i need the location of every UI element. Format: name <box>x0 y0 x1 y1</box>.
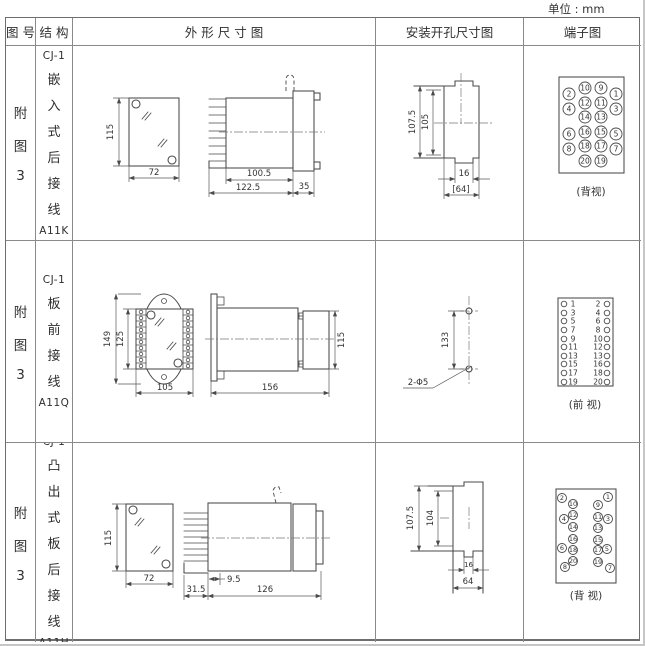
row3-install-drawing: 107.5 104 16 64 <box>376 443 524 642</box>
unit-label: 单位 : mm <box>548 1 638 17</box>
svg-text:2: 2 <box>560 494 564 502</box>
stacked-char: 3 <box>16 367 25 383</box>
svg-text:20: 20 <box>569 557 577 565</box>
svg-text:11: 11 <box>594 513 602 521</box>
view-label: (背视) <box>576 185 605 198</box>
row3-structure: CJ-1凸出式板后接线A11H <box>36 443 73 642</box>
svg-text:5: 5 <box>605 545 609 553</box>
terminals-back-view: 2 4 6 8 10 12 14 16 18 20 9 11 13 15 17 … <box>558 493 615 573</box>
stacked-char: 附 <box>14 301 28 321</box>
svg-text:15: 15 <box>594 536 602 544</box>
svg-text:13: 13 <box>596 113 606 122</box>
dim-9-5: 9.5 <box>227 575 241 585</box>
svg-text:7: 7 <box>608 564 612 572</box>
stacked-char: A11H <box>39 637 69 642</box>
row3-front-dim-lines <box>112 504 173 588</box>
svg-text:10: 10 <box>580 84 590 93</box>
svg-text:14: 14 <box>580 113 590 122</box>
stacked-char: 接 <box>47 585 60 604</box>
dim-126: 126 <box>257 585 273 595</box>
stacked-char: CJ-1 <box>43 443 66 448</box>
header-structure: 结 构 <box>36 18 73 46</box>
svg-text:16: 16 <box>593 360 603 369</box>
stacked-char: 出 <box>47 481 60 500</box>
stacked-char: 线 <box>47 199 60 218</box>
row2-terminal-diagram: 12 34 56 78 910 1112 1313 1516 1718 1920… <box>524 241 641 443</box>
svg-text:12: 12 <box>593 343 603 352</box>
svg-text:19: 19 <box>594 558 602 566</box>
row3-fig-no: 附图3 <box>6 443 36 642</box>
dim-16: 16 <box>459 169 470 179</box>
svg-text:2: 2 <box>567 90 572 99</box>
view-label: (背 视) <box>570 589 603 602</box>
dim-107-5: 107.5 <box>406 506 416 530</box>
dim-104: 104 <box>426 510 436 526</box>
row2-install-drawing: 133 2-Φ5 <box>376 241 524 443</box>
svg-text:19: 19 <box>568 378 578 387</box>
header-fig-no: 图 号 <box>6 18 36 46</box>
stacked-char: 线 <box>47 371 60 390</box>
stacked-char: 后 <box>47 559 60 578</box>
install-dim-lines <box>414 486 489 588</box>
dim-149: 149 <box>103 331 113 347</box>
stacked-char: 接 <box>47 173 60 192</box>
dim-72: 72 <box>144 574 155 584</box>
svg-text:5: 5 <box>614 130 619 139</box>
stacked-char: 式 <box>47 121 60 140</box>
svg-text:9: 9 <box>599 84 604 93</box>
stacked-char: A11Q <box>39 397 70 409</box>
dim-125: 125 <box>116 331 126 347</box>
row1-fig-no: 附图3 <box>6 46 36 241</box>
dim-107-5: 107.5 <box>408 110 418 134</box>
row1-terminal-diagram: 2 4 6 8 10 12 14 16 18 20 9 11 13 15 17 … <box>524 46 641 241</box>
svg-text:10: 10 <box>569 500 577 508</box>
svg-text:7: 7 <box>614 145 619 154</box>
svg-text:9: 9 <box>596 501 600 509</box>
svg-text:3: 3 <box>606 515 610 523</box>
svg-text:5: 5 <box>571 317 576 326</box>
row2-structure: CJ-1板前接线A11Q <box>36 241 73 443</box>
svg-text:2: 2 <box>596 300 601 309</box>
svg-text:1: 1 <box>614 90 619 99</box>
svg-text:6: 6 <box>560 544 564 552</box>
stacked-char: 式 <box>47 507 60 526</box>
dim-122-5: 122.5 <box>236 183 260 193</box>
row1-front-view <box>129 98 179 166</box>
svg-text:8: 8 <box>563 563 567 571</box>
header-install: 安装开孔尺寸图 <box>376 18 524 46</box>
row1-outline-drawing: 115 72 100.5 122.5 <box>73 46 376 241</box>
dim-16: 16 <box>464 561 473 569</box>
stacked-char: 图 <box>14 135 28 155</box>
row1-install-drawing: 107.5 105 16 [64] <box>376 46 524 241</box>
svg-text:1: 1 <box>606 493 610 501</box>
svg-text:11: 11 <box>568 343 578 352</box>
header-terminal: 端子图 <box>524 18 641 46</box>
row2-front-view <box>136 294 193 384</box>
dim-31-5: 31.5 <box>187 585 206 595</box>
stacked-char: 板 <box>47 533 60 552</box>
dim-64: [64] <box>452 185 469 195</box>
svg-text:15: 15 <box>596 128 606 137</box>
svg-text:18: 18 <box>569 546 577 554</box>
page: 单位 : mm 图 号 结 构 外 形 尺 寸 图 安装开孔尺寸图 端子图 附图… <box>0 0 645 646</box>
install-dim-lines <box>403 311 472 388</box>
handle-dashed <box>273 487 281 503</box>
row2-side-view <box>211 294 329 381</box>
dim-35: 35 <box>299 182 310 192</box>
svg-text:4: 4 <box>562 515 566 523</box>
hole-label: 2-Φ5 <box>408 378 429 388</box>
svg-text:11: 11 <box>596 99 606 108</box>
svg-text:4: 4 <box>567 105 572 114</box>
stacked-char: A11K <box>39 225 68 237</box>
stacked-char: 3 <box>16 168 25 184</box>
stacked-char: 图 <box>14 334 28 354</box>
stacked-char: 附 <box>14 502 28 522</box>
stacked-char: CJ-1 <box>43 50 66 62</box>
svg-text:13: 13 <box>594 524 602 532</box>
dim-72: 72 <box>149 168 160 178</box>
row3-outline-drawing: 115 72 9.5 3 <box>73 443 376 642</box>
svg-text:20: 20 <box>580 157 590 166</box>
svg-text:12: 12 <box>569 511 577 519</box>
stacked-char: 前 <box>47 319 60 338</box>
stacked-char: 附 <box>14 102 28 122</box>
svg-text:16: 16 <box>569 535 577 543</box>
svg-text:7: 7 <box>571 326 576 335</box>
row1-side-view <box>209 91 320 171</box>
svg-text:8: 8 <box>596 326 601 335</box>
row3-terminal-diagram: 2 4 6 8 10 12 14 16 18 20 9 11 13 15 17 … <box>524 443 641 642</box>
svg-text:6: 6 <box>567 130 572 139</box>
row1-structure: CJ-1嵌入式后接线A11K <box>36 46 73 241</box>
dim-100-5: 100.5 <box>247 169 271 179</box>
view-label: (前 视) <box>569 398 602 411</box>
header-outline: 外 形 尺 寸 图 <box>73 18 376 46</box>
dim-64: 64 <box>463 577 474 587</box>
terminals-back-view: 2 4 6 8 10 12 14 16 18 20 9 11 13 15 17 … <box>563 82 622 167</box>
svg-text:16: 16 <box>580 128 590 137</box>
stacked-char: CJ-1 <box>43 274 66 286</box>
stacked-char: 凸 <box>47 455 60 474</box>
spec-table: 图 号 结 构 外 形 尺 寸 图 安装开孔尺寸图 端子图 附图3 CJ-1嵌入… <box>5 17 640 641</box>
dim-115: 115 <box>106 124 116 140</box>
terminals-front-view: 12 34 56 78 910 1112 1313 1516 1718 1920 <box>561 300 610 387</box>
stacked-char: 板 <box>47 293 60 312</box>
centerlines <box>440 507 469 529</box>
dim-133: 133 <box>441 332 451 348</box>
row3-front-view <box>126 504 173 571</box>
stacked-char: 图 <box>14 535 28 555</box>
row2-fig-no: 附图3 <box>6 241 36 443</box>
svg-text:20: 20 <box>593 378 603 387</box>
stacked-char: 3 <box>16 568 25 584</box>
row2-outline-drawing: 149 125 105 115 156 <box>73 241 376 443</box>
dim-115: 115 <box>104 530 114 546</box>
svg-text:3: 3 <box>614 105 619 114</box>
stacked-char: 入 <box>47 95 60 114</box>
handle-dashed <box>286 75 294 91</box>
svg-text:6: 6 <box>596 317 601 326</box>
svg-text:15: 15 <box>568 360 578 369</box>
svg-text:14: 14 <box>569 523 577 531</box>
stacked-char: 接 <box>47 345 60 364</box>
dim-156: 156 <box>262 383 278 393</box>
stacked-char: 嵌 <box>47 69 60 88</box>
row1-front-dim-lines <box>113 98 179 182</box>
svg-text:17: 17 <box>596 142 606 151</box>
dim-105: 105 <box>157 383 173 393</box>
svg-text:12: 12 <box>580 99 590 108</box>
dim-105: 105 <box>421 114 431 130</box>
svg-text:18: 18 <box>593 369 603 378</box>
svg-text:1: 1 <box>571 300 576 309</box>
svg-text:19: 19 <box>596 157 606 166</box>
dim-115: 115 <box>337 332 347 348</box>
stacked-char: 线 <box>47 611 60 630</box>
svg-text:8: 8 <box>567 145 572 154</box>
svg-text:18: 18 <box>580 142 590 151</box>
svg-text:17: 17 <box>568 369 578 378</box>
svg-text:17: 17 <box>594 546 602 554</box>
stacked-char: 后 <box>47 147 60 166</box>
